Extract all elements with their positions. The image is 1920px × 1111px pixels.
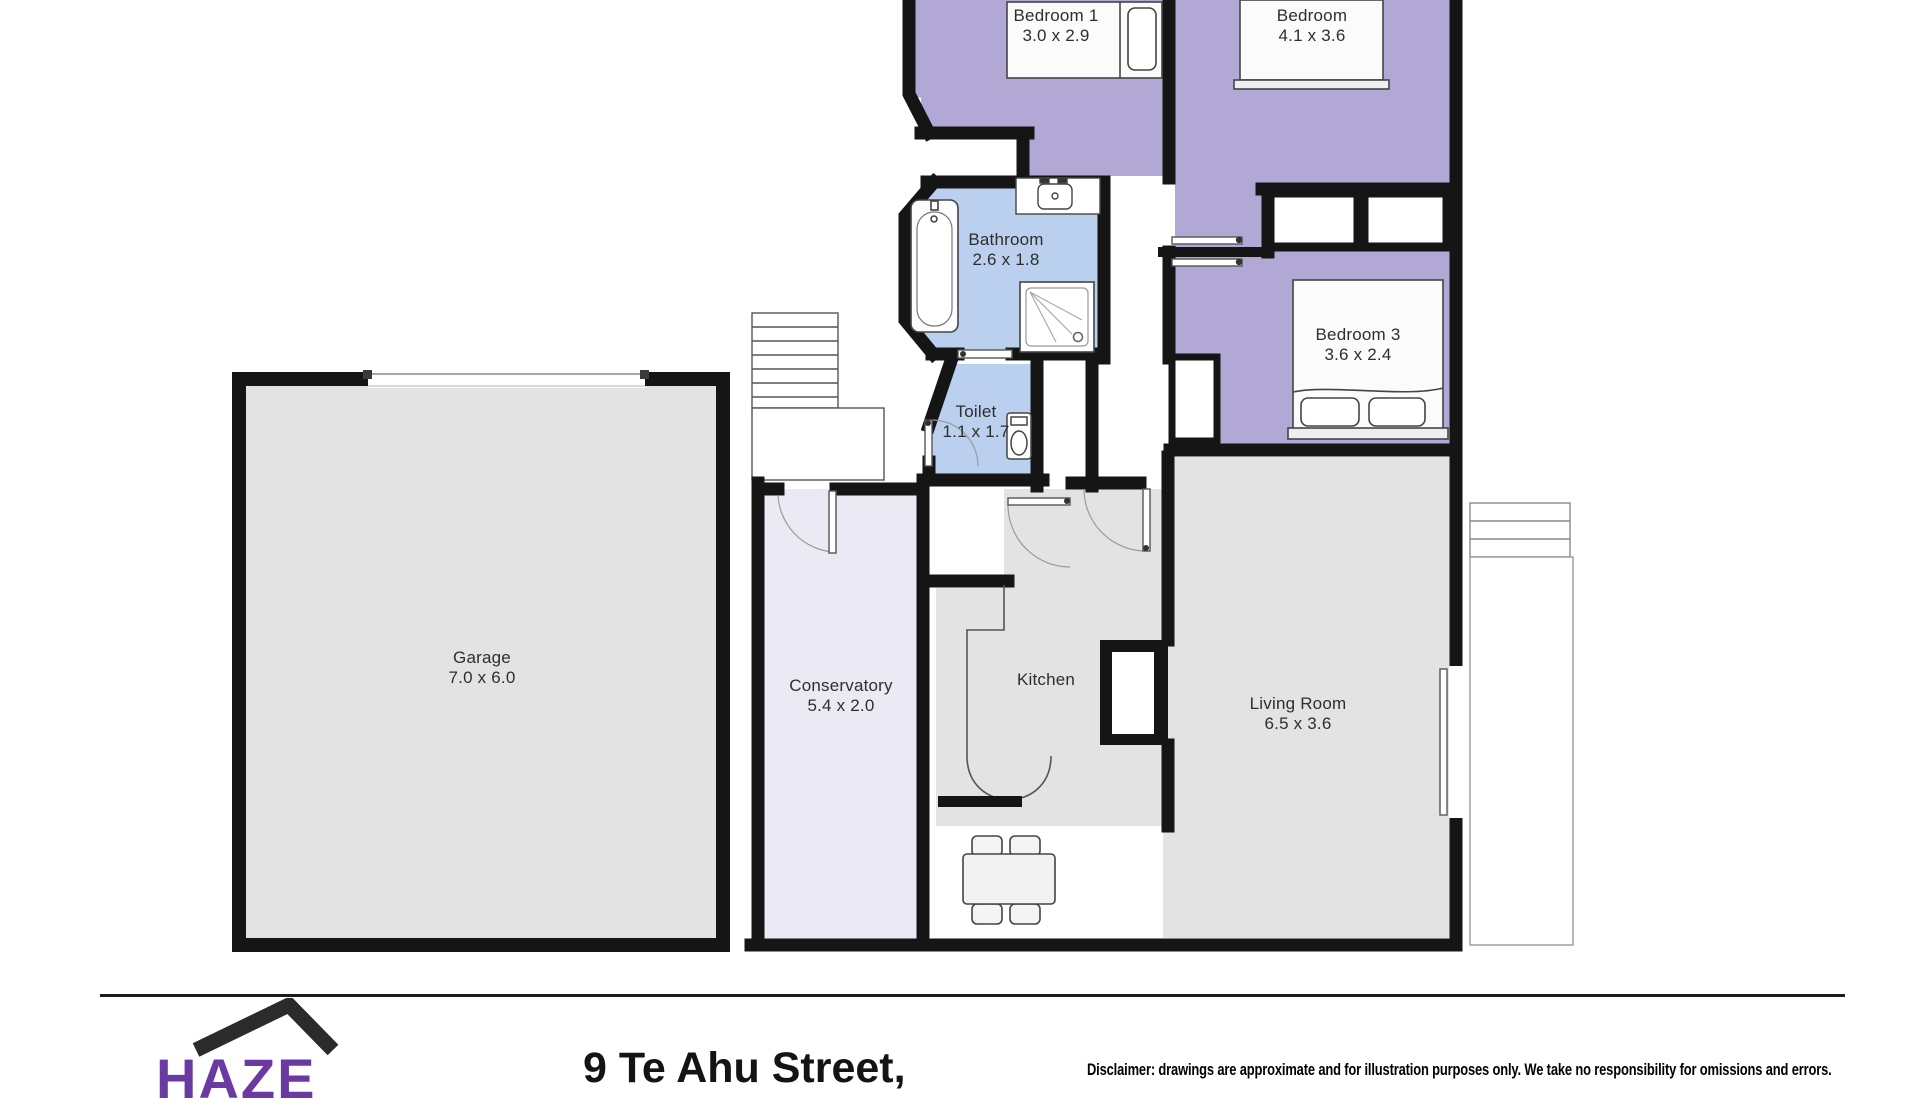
room-label-bedroom1: Bedroom 1 3.0 x 2.9 bbox=[1014, 6, 1099, 46]
room-dims: 2.6 x 1.8 bbox=[968, 250, 1043, 270]
room-name: Bedroom 3 bbox=[1316, 325, 1401, 345]
room-label-kitchen: Kitchen bbox=[1017, 670, 1075, 690]
floorplan-drawing bbox=[0, 0, 1920, 1080]
room-name: Bathroom bbox=[968, 230, 1043, 250]
bathtub-icon bbox=[911, 200, 958, 332]
room-name: Toilet bbox=[942, 402, 1009, 422]
room-label-living: Living Room 6.5 x 3.6 bbox=[1250, 694, 1347, 734]
basin-icon bbox=[1016, 178, 1100, 214]
room-dims: 5.4 x 2.0 bbox=[789, 696, 893, 716]
room-dims: 6.5 x 3.6 bbox=[1250, 714, 1347, 734]
door-bathroom-icon bbox=[958, 350, 1012, 358]
living-window-door-icon bbox=[1440, 666, 1463, 818]
room-dims: 3.6 x 2.4 bbox=[1316, 345, 1401, 365]
dining-table-icon bbox=[963, 836, 1055, 924]
room-label-garage: Garage 7.0 x 6.0 bbox=[448, 648, 515, 688]
room-dims: 7.0 x 6.0 bbox=[448, 668, 515, 688]
stairs-icon bbox=[752, 313, 884, 480]
footer-divider bbox=[100, 994, 1845, 997]
exterior-structures bbox=[1470, 503, 1573, 945]
room-dims: 4.1 x 3.6 bbox=[1277, 26, 1347, 46]
room-label-conservatory: Conservatory 5.4 x 2.0 bbox=[789, 676, 893, 716]
toilet-pan-icon bbox=[1007, 413, 1031, 459]
room-label-bathroom: Bathroom 2.6 x 1.8 bbox=[968, 230, 1043, 270]
disclaimer-text: Disclaimer: drawings are approximate and… bbox=[1087, 1060, 1832, 1080]
room-label-bedroom3: Bedroom 3 3.6 x 2.4 bbox=[1316, 325, 1401, 365]
address-title: 9 Te Ahu Street, bbox=[583, 1044, 906, 1093]
shower-icon bbox=[1020, 282, 1094, 352]
room-name: Conservatory bbox=[789, 676, 893, 696]
room-dims: 1.1 x 1.7 bbox=[942, 422, 1009, 442]
closet-icon bbox=[1172, 357, 1217, 441]
room-label-bedroom: Bedroom 4.1 x 3.6 bbox=[1277, 6, 1347, 46]
room-name: Bedroom 1 bbox=[1014, 6, 1099, 26]
room-label-toilet: Toilet 1.1 x 1.7 bbox=[942, 402, 1009, 442]
garage-door-icon bbox=[363, 370, 649, 388]
steps-icon bbox=[1470, 503, 1570, 557]
room-name: Living Room bbox=[1250, 694, 1347, 714]
patio-outline bbox=[1470, 557, 1573, 945]
room-name: Bedroom bbox=[1277, 6, 1347, 26]
room-dims: 3.0 x 2.9 bbox=[1014, 26, 1099, 46]
wardrobes-icon bbox=[1270, 193, 1447, 247]
stair-landing bbox=[752, 408, 884, 480]
room-name: Garage bbox=[448, 648, 515, 668]
logo-text: HAZE bbox=[156, 1046, 316, 1111]
fireplace-icon bbox=[1100, 640, 1168, 745]
room-name: Kitchen bbox=[1017, 670, 1075, 690]
